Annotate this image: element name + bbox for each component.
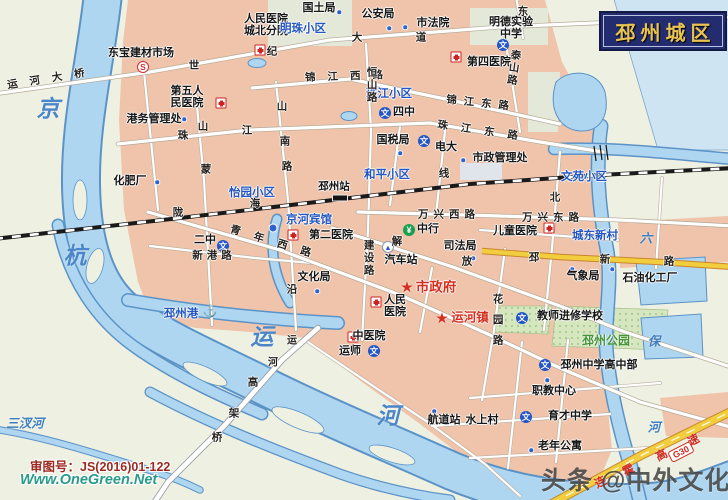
city-map-canvas[interactable]: 运河大桥世纪大道东宝建材市场第五人 民医院港务管理处化肥厂人民医院 城北分院国土… [0, 0, 728, 500]
map-title-box: 邳州城区 [599, 11, 727, 51]
map-title: 邳州城区 [616, 17, 716, 46]
map-base-art [0, 0, 728, 500]
